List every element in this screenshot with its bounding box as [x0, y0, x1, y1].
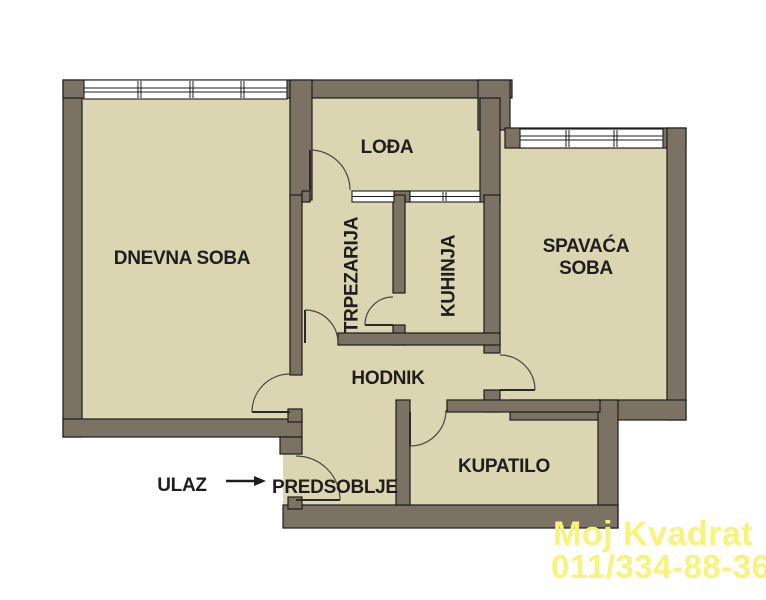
entrance-arrow-head — [254, 476, 266, 486]
entrance-label: ULAZ — [157, 475, 207, 496]
wall-outer-left — [63, 80, 82, 437]
wall-bathroom-top — [447, 400, 600, 412]
room-label-spavaca-soba-line1: SPAVAĆA — [543, 235, 630, 257]
wall-living-loggia-divider — [290, 80, 312, 200]
room-label-hodnik: HODNIK — [351, 368, 425, 389]
room-label-spavaca-soba-line2: SOBA — [559, 258, 613, 279]
floor-plan-page: DNEVNA SOBA LOĐA TRPEZARIJA KUHINJA SPAV… — [0, 0, 766, 600]
wall-loggia-stub — [302, 191, 310, 202]
room-label-kupatilo: KUPATILO — [458, 456, 550, 477]
wall-living-door-stub — [288, 409, 302, 422]
wall-kitchen-right — [484, 195, 500, 353]
loggia-window-right — [410, 191, 480, 202]
living-room-window — [84, 80, 287, 99]
wall-entry-block — [280, 437, 302, 454]
wall-bathroom-left — [396, 400, 410, 505]
watermark-line2: 011/334-88-36 — [551, 548, 766, 585]
watermark: Moj Kvadrat 011/334-88-36 — [551, 515, 766, 585]
wall-living-bottom — [63, 419, 302, 437]
wall-dining-bottom — [338, 333, 500, 345]
room-label-kuhinja: KUHINJA — [439, 234, 460, 317]
loggia-window-left — [352, 191, 394, 202]
wall-entry-stub — [288, 497, 302, 509]
room-label-predsoblje: PREDSOBLJE — [272, 477, 398, 498]
wall-living-right — [290, 195, 302, 375]
entrance-annotation: ULAZ — [157, 475, 266, 496]
room-label-loda: LOĐA — [361, 137, 414, 158]
wall-dining-kitchen-divider — [393, 195, 405, 293]
room-label-trpezarija: TRPEZARIJA — [342, 216, 363, 333]
wall-loggia-right — [480, 98, 500, 202]
room-label-dnevna-soba: DNEVNA SOBA — [114, 248, 251, 269]
wall-outer-right — [667, 128, 686, 420]
floor-plan-drawing: DNEVNA SOBA LOĐA TRPEZARIJA KUHINJA SPAV… — [0, 0, 766, 600]
bedroom-window — [520, 129, 663, 148]
